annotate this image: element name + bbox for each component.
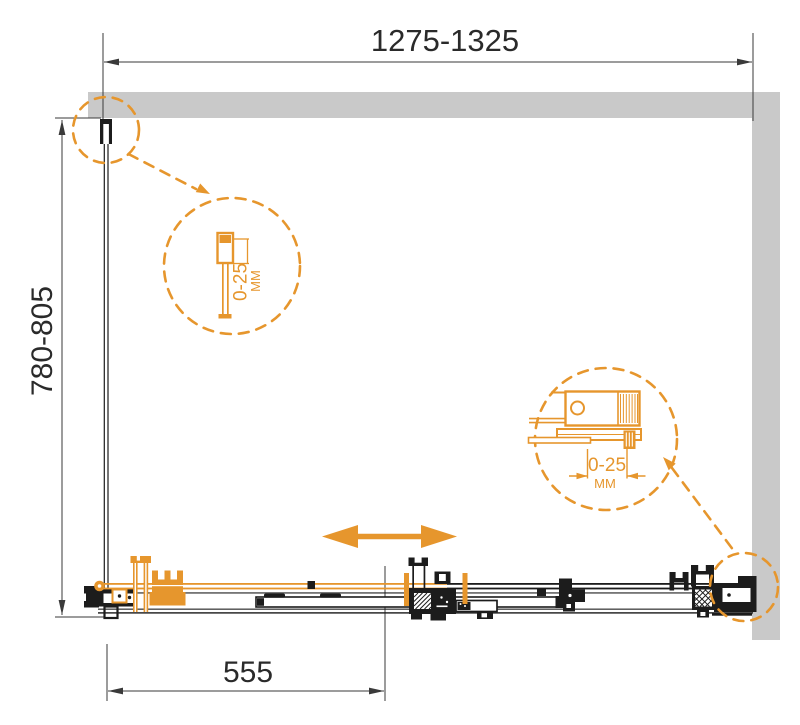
side-wall xyxy=(752,92,780,640)
dim-arrow-left xyxy=(104,59,119,66)
depth-dimension-label: 780-805 xyxy=(26,286,59,396)
slide-direction-arrow-icon xyxy=(322,525,457,548)
door-profile-end xyxy=(463,573,468,604)
dim-arrow-down xyxy=(59,600,66,615)
rail-stopper xyxy=(537,589,546,596)
dim-arrow-right xyxy=(369,688,384,695)
back-wall xyxy=(88,92,780,118)
detail-view-wall-profile: 0-25 ММ xyxy=(164,198,300,334)
wall-profile-top xyxy=(100,119,112,144)
profile-hatch xyxy=(621,394,638,423)
detail-leader-right xyxy=(663,457,734,551)
door-travel-label: 555 xyxy=(223,656,273,689)
detail-unit-label-left: ММ xyxy=(248,270,263,292)
detail-leader-left xyxy=(129,154,211,194)
dim-arrow-right xyxy=(737,59,752,66)
walls xyxy=(88,92,780,640)
shower-enclosure-installation-diagram: 1275-1325 780-805 555 xyxy=(0,0,800,725)
dim-arrow-up xyxy=(59,120,66,135)
roller-carriage-right xyxy=(691,565,757,618)
fixed-glass-panel xyxy=(100,119,112,596)
panel-clip xyxy=(320,594,341,598)
door-travel-dimension: 555 xyxy=(107,566,385,701)
rail-stopper xyxy=(308,581,316,589)
panel-clip xyxy=(264,594,285,598)
width-dimension-label: 1275-1325 xyxy=(371,23,519,58)
door-track xyxy=(81,556,757,621)
detail-view-door-profile: 0-25 ММ xyxy=(529,368,678,510)
detail-unit-label-right: ММ xyxy=(594,476,616,491)
depth-dimension: 780-805 xyxy=(26,118,106,617)
detail-range-label-right: 0-25 xyxy=(588,455,626,476)
door-profile-end xyxy=(404,573,409,606)
dim-arrow-left xyxy=(108,688,123,695)
